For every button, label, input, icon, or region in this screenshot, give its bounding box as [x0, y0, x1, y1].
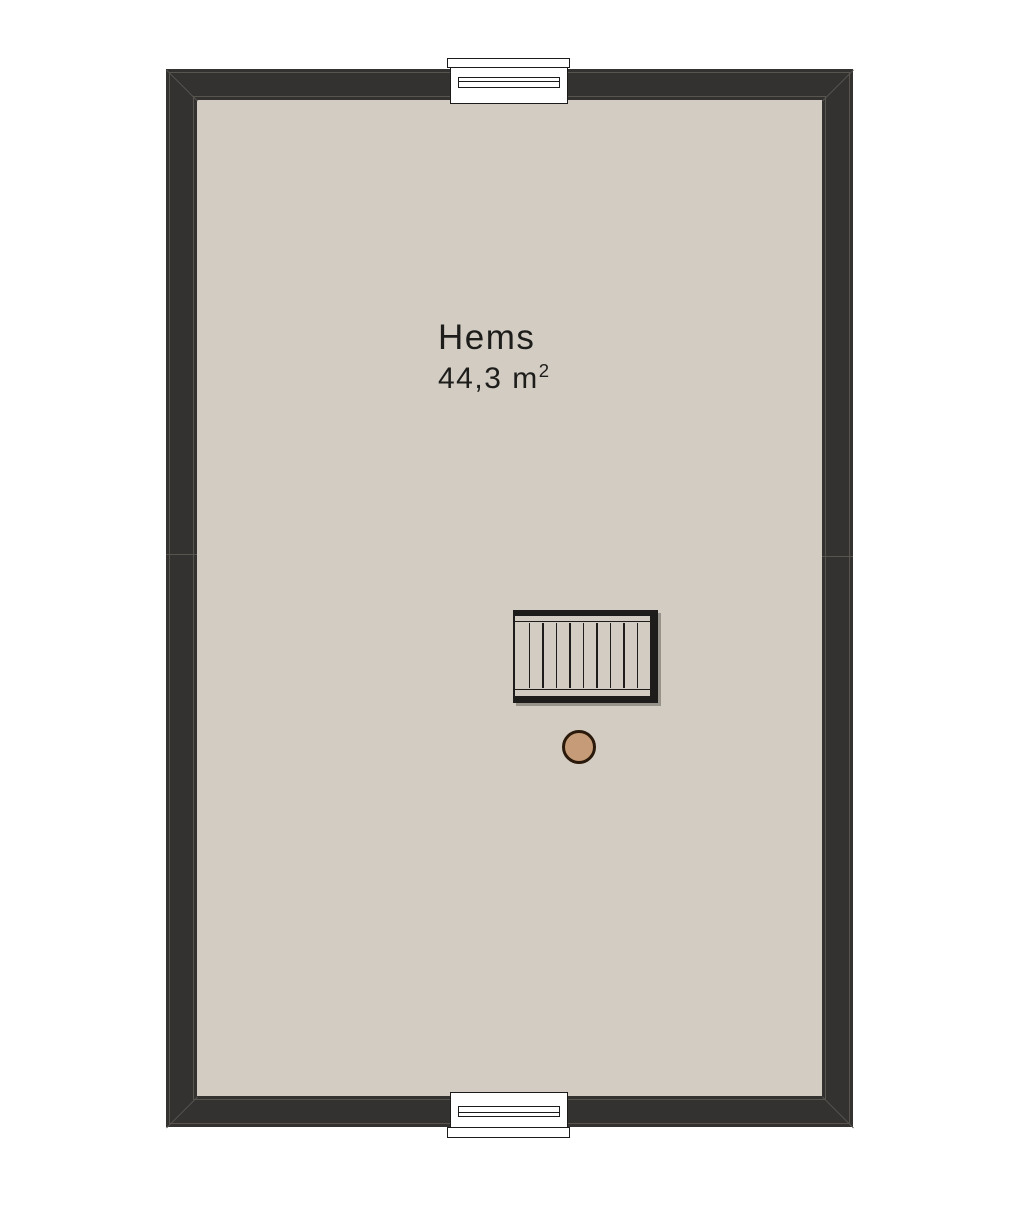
room-area-label: 44,3 m2 [438, 363, 551, 395]
round-post [562, 730, 596, 764]
stair-tread-line [529, 623, 531, 689]
staircase [513, 610, 658, 703]
room-name-label: Hems [438, 320, 551, 356]
window-bottom-sill [447, 1127, 570, 1138]
stair-tread-line [556, 623, 558, 689]
window-top-glazing [458, 77, 560, 88]
stair-tread-line [623, 623, 625, 689]
stair-tread-line [596, 623, 598, 689]
stair-tread-line [542, 623, 544, 689]
stair-treads [515, 623, 650, 689]
window-glazing-line [459, 81, 559, 82]
stair-tread-line [569, 623, 571, 689]
window-glazing-line [459, 1112, 559, 1113]
floor-area [197, 100, 822, 1096]
room-label-block: Hems 44,3 m2 [438, 320, 551, 395]
stair-top-stringer [515, 616, 650, 622]
stair-tread-line [637, 623, 639, 689]
wall-seam-line [822, 556, 853, 557]
window-bottom-glazing [458, 1106, 560, 1117]
wall-seam-line [166, 554, 197, 555]
stair-bottom-stringer [515, 689, 650, 696]
room-area-value: 44,3 m [438, 362, 539, 395]
stair-tread-line [610, 623, 612, 689]
room-area-exponent: 2 [539, 360, 551, 381]
floorplan-canvas: Hems 44,3 m2 [0, 0, 1033, 1229]
stair-tread-line [583, 623, 585, 689]
